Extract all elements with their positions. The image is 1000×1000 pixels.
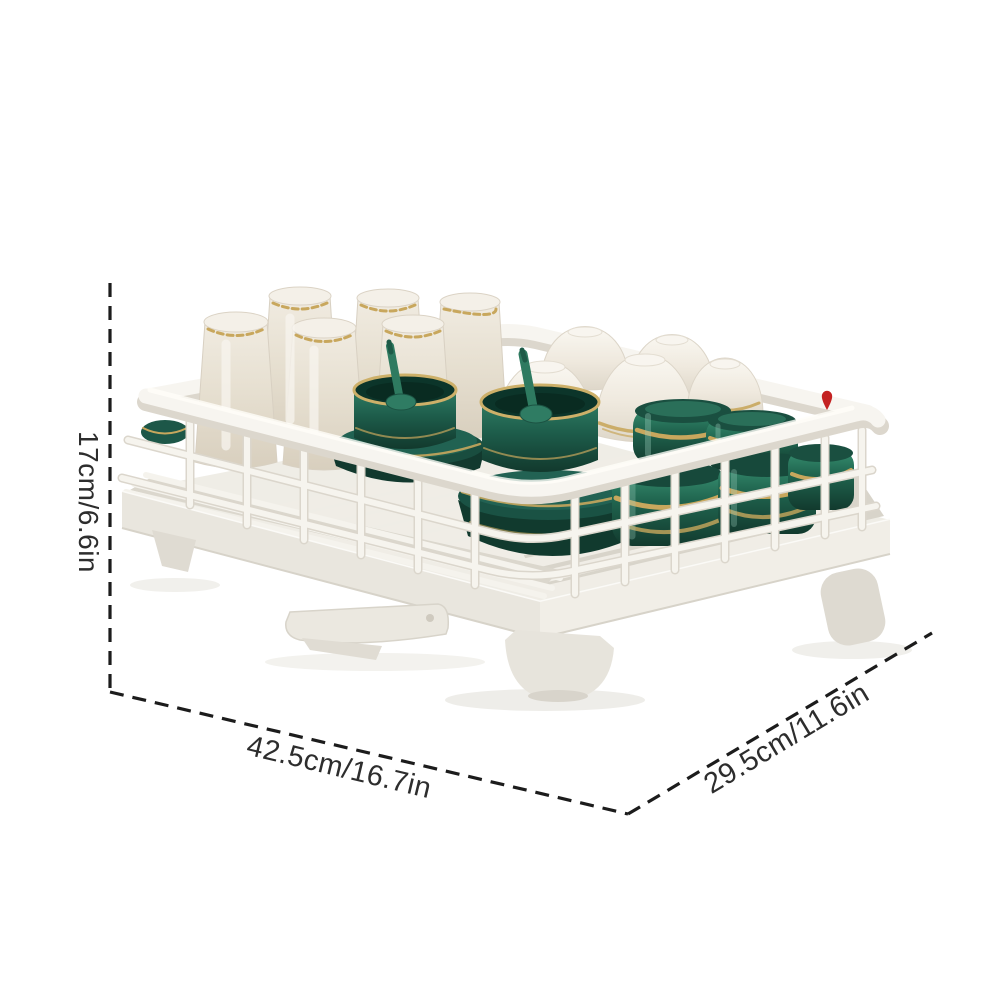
product-image: 17cm/6.6in 42.5cm/16.7in 29.5cm/11.6in: [0, 0, 1000, 1000]
height-dimension-label: 17cm/6.6in: [72, 431, 104, 573]
right-foot: [817, 565, 889, 649]
product-illustration: [0, 0, 1000, 1000]
drain-spout: [286, 604, 449, 660]
